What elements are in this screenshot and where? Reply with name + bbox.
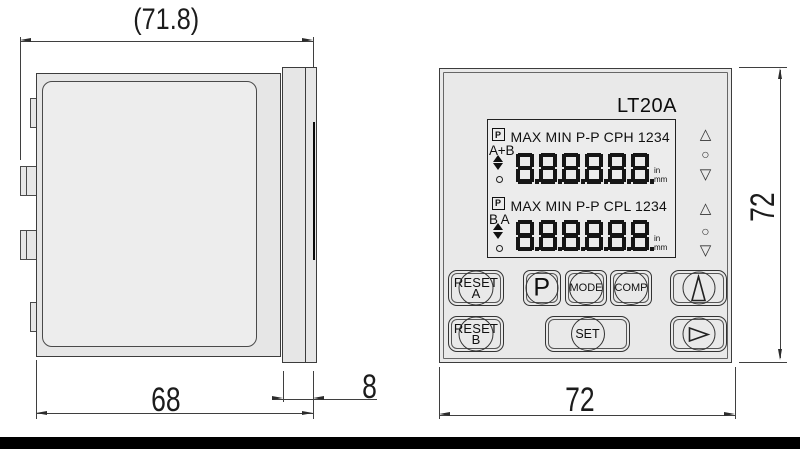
preset-p-icon: P [492, 128, 505, 141]
indicator-circle-icon: ○ [697, 147, 714, 161]
lcd-display: P MAX MIN P-P CPH 1234 A+B in mm P MAX M… [487, 119, 676, 258]
set-button-circle: SET [571, 317, 605, 351]
unit-in: in [654, 166, 667, 175]
unit-label: in mm [654, 234, 667, 252]
mode-label: MODE [570, 282, 603, 294]
comp-button-circle: COMP [614, 271, 648, 305]
up-arrow-button-circle [682, 272, 715, 305]
reset-b-line2: B [472, 334, 481, 346]
origin-dot-icon [496, 245, 503, 252]
seven-segment-digits [516, 220, 654, 251]
unit-mm: mm [654, 243, 667, 252]
arrowhead [302, 38, 313, 42]
up-triangle-icon [493, 223, 503, 230]
extension-line [739, 362, 787, 363]
arrowhead [778, 68, 782, 79]
origin-dot-icon [496, 176, 503, 183]
dimension-overall-depth: (71.8) [113, 5, 219, 35]
tab-divider-line [26, 231, 27, 259]
extension-line [20, 37, 21, 160]
preset-p-icon: P [492, 197, 505, 210]
reset-a-button: RESET A [448, 270, 504, 306]
arrowhead [313, 396, 324, 400]
indicator-up-triangle-icon: △ [697, 127, 714, 142]
mode-button-circle: MODE [569, 271, 603, 305]
arrowhead [272, 396, 283, 400]
indicator-down-triangle-icon: ▽ [697, 243, 714, 258]
bezel-front-plate [305, 67, 318, 363]
unit-label: in mm [654, 166, 667, 184]
indicator-up-triangle-icon: △ [697, 201, 714, 216]
reset-a-label: RESET A [449, 271, 503, 305]
up-arrow-button [670, 270, 727, 306]
status-labels: MAX MIN P-P CPH 1234 [511, 129, 670, 145]
arrowhead [439, 412, 450, 416]
updown-marker-icon [493, 155, 504, 171]
dimension-case-depth: 68 [126, 383, 206, 417]
status-labels: MAX MIN P-P CPL 1234 [511, 198, 668, 214]
bezel-groove [313, 122, 316, 260]
indicator-circle-icon: ○ [697, 224, 714, 238]
arrowhead [36, 411, 47, 415]
unit-mm: mm [654, 175, 667, 184]
reset-b-label: RESET B [449, 317, 503, 351]
technical-drawing-canvas: (71.8) 68 8 LT20A [0, 0, 800, 449]
mode-button: MODE [565, 270, 607, 306]
preset-button-circle: P [525, 272, 558, 305]
set-label: SET [575, 327, 599, 341]
tab-divider-line [26, 167, 27, 195]
dimension-panel-width: 72 [540, 383, 620, 417]
preset-label: P [533, 274, 550, 303]
indicator-down-triangle-icon: ▽ [697, 167, 714, 182]
right-arrow-button-circle [682, 318, 715, 351]
right-arrow-button [670, 316, 727, 352]
extension-line [735, 367, 736, 419]
right-arrow-icon [687, 325, 711, 343]
bottom-black-bar [0, 437, 800, 449]
dimension-line [20, 41, 313, 42]
reset-b-button: RESET B [448, 316, 504, 352]
set-button: SET [545, 316, 630, 352]
down-triangle-icon [493, 163, 503, 170]
arrowhead [302, 411, 313, 415]
dimension-bezel-depth: 8 [339, 370, 399, 404]
comp-button: COMP [610, 270, 652, 306]
comp-label: COMP [615, 282, 648, 294]
case-cover [42, 81, 257, 347]
arrowhead [20, 38, 31, 42]
updown-marker-icon [493, 223, 504, 239]
down-triangle-icon [493, 232, 503, 239]
unit-in: in [654, 234, 667, 243]
up-arrow-icon [689, 274, 709, 302]
reset-a-line2: A [472, 288, 481, 300]
arrowhead [724, 412, 735, 416]
extension-line [283, 371, 284, 402]
mounting-tab [20, 230, 38, 260]
model-label: LT20A [608, 95, 686, 118]
bezel-back-plate [282, 67, 306, 363]
extension-line [313, 37, 314, 67]
arrowhead [778, 349, 782, 360]
seven-segment-digits [516, 153, 654, 184]
up-triangle-icon [493, 155, 503, 162]
mounting-tab [20, 166, 38, 196]
dimension-panel-height: 72 [743, 187, 783, 227]
preset-button: P [523, 270, 561, 306]
